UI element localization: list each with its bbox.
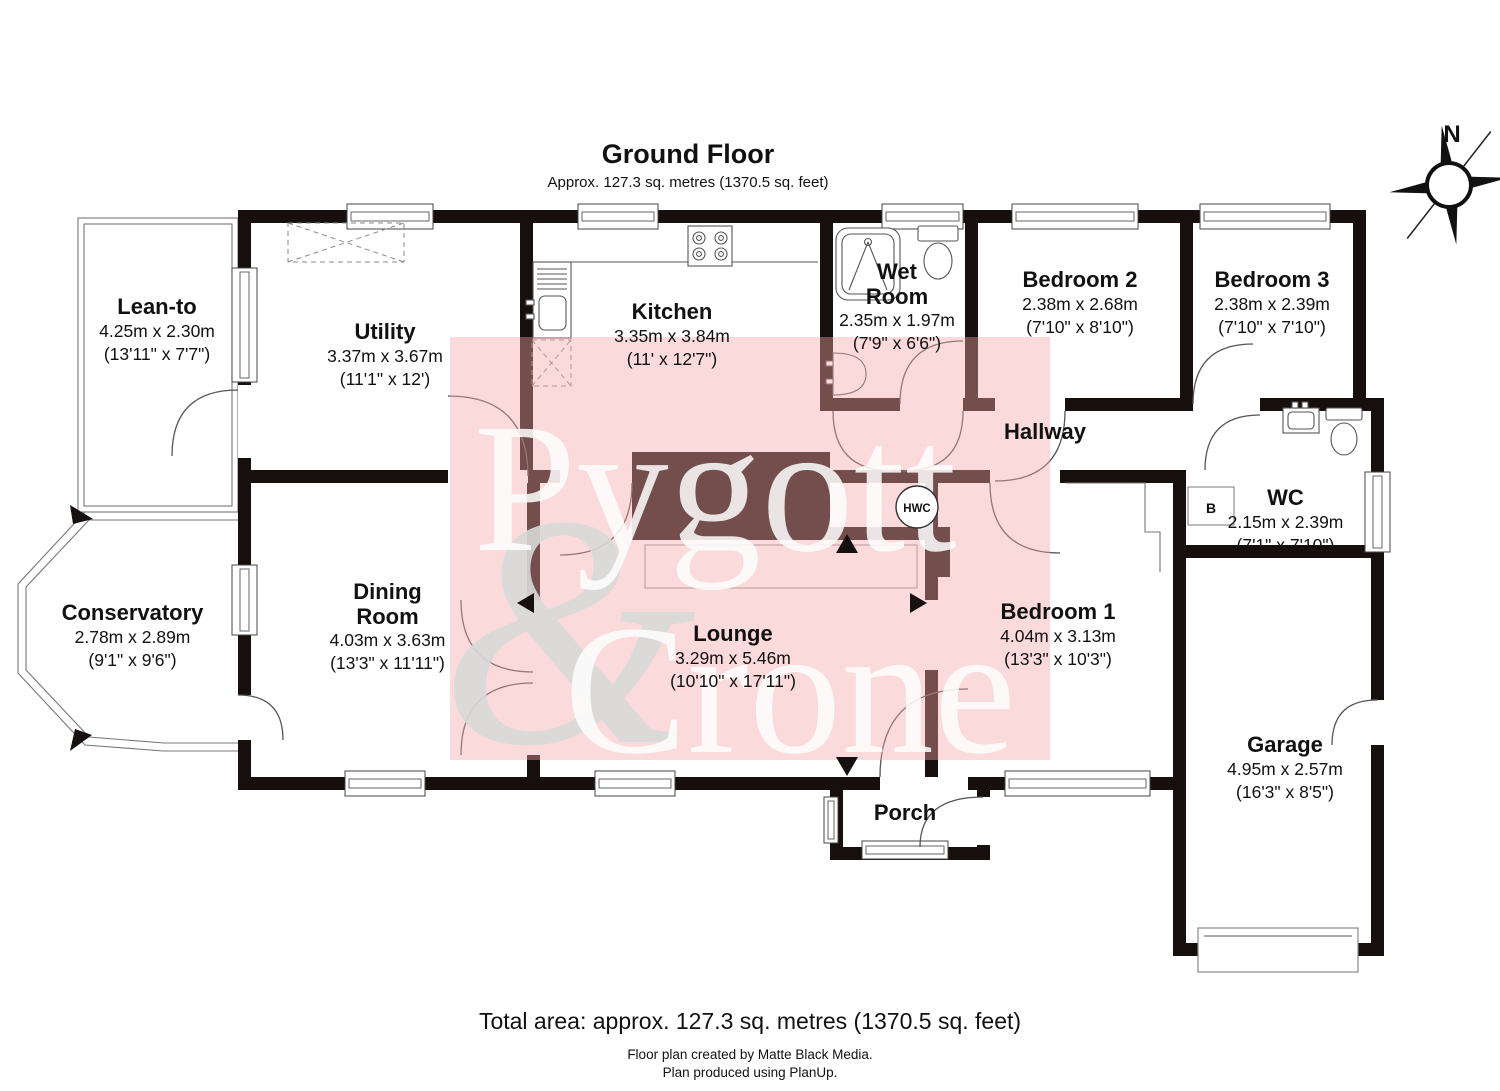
hwc-cylinder: HWC <box>896 486 938 528</box>
bedroom3-door-arc <box>1193 344 1253 404</box>
window <box>882 204 963 229</box>
hob <box>688 226 732 266</box>
kitchen-sink <box>526 262 571 338</box>
room-label-conservatory: Conservatory 2.78m x 2.89m (9'1" x 9'6") <box>30 601 235 672</box>
plan-title-block: Ground Floor Approx. 127.3 sq. metres (1… <box>438 140 938 191</box>
watermark-word-1: Pygott <box>473 386 956 591</box>
hwc-label: HWC <box>903 503 930 515</box>
credit-line-2: Plan produced using PlanUp. <box>0 1065 1500 1080</box>
room-label-bedroom-1: Bedroom 1 4.04m x 3.13m (13'3" x 10'3") <box>958 600 1158 671</box>
room-label-bedroom-3: Bedroom 3 2.38m x 2.39m (7'10" x 7'10") <box>1172 268 1372 339</box>
room-label-bedroom-2: Bedroom 2 2.38m x 2.68m (7'10" x 8'10") <box>980 268 1180 339</box>
north-label: N <box>1443 121 1460 148</box>
conservatory-joint-wedge <box>70 505 93 524</box>
window <box>862 841 948 859</box>
window <box>824 797 838 843</box>
room-label-garage: Garage 4.95m x 2.57m (16'3" x 8'5") <box>1185 733 1385 804</box>
bedroom1-wardrobe-line <box>1065 483 1160 572</box>
room-label-hallway: Hallway <box>960 420 1130 445</box>
page-subtitle: Approx. 127.3 sq. metres (1370.5 sq. fee… <box>438 174 938 191</box>
north-arrow-icon <box>1382 118 1500 252</box>
page-title: Ground Floor <box>438 140 938 170</box>
floor-plan-page: & Pygott Crone HWC B N <box>0 0 1500 1091</box>
wc-toilet <box>1326 408 1362 455</box>
watermark: & Pygott Crone <box>440 337 1050 814</box>
window <box>1005 771 1150 796</box>
room-label-dining-room: Dining Room 4.03m x 3.63m (13'3" x 11'11… <box>300 580 475 675</box>
room-label-kitchen: Kitchen 3.35m x 3.84m (11' x 12'7") <box>577 300 767 371</box>
room-label-wc: WC 2.15m x 2.39m (7'1" x 7'10") <box>1198 486 1373 557</box>
window <box>232 565 257 635</box>
footer-block: Total area: approx. 127.3 sq. metres (13… <box>0 1008 1500 1080</box>
window <box>578 204 658 229</box>
window <box>347 204 433 229</box>
garage-door <box>1198 928 1358 972</box>
window <box>345 771 425 796</box>
credit-line-1: Floor plan created by Matte Black Media. <box>0 1047 1500 1062</box>
room-label-utility: Utility 3.37m x 3.67m (11'1" x 12') <box>290 320 480 391</box>
wc-door-arc <box>1205 415 1260 470</box>
room-label-lounge: Lounge 3.29m x 5.46m (10'10" x 17'11") <box>633 622 833 693</box>
room-label-lean-to: Lean-to 4.25m x 2.30m (13'11" x 7'7") <box>72 295 242 366</box>
window <box>1200 204 1330 229</box>
room-label-wet-room: Wet Room 2.35m x 1.97m (7'9" x 6'6") <box>822 260 972 355</box>
window <box>1012 204 1138 229</box>
room-label-porch: Porch <box>845 801 965 826</box>
lean-to-door-arc <box>172 390 238 456</box>
total-area-text: Total area: approx. 127.3 sq. metres (13… <box>0 1008 1500 1035</box>
